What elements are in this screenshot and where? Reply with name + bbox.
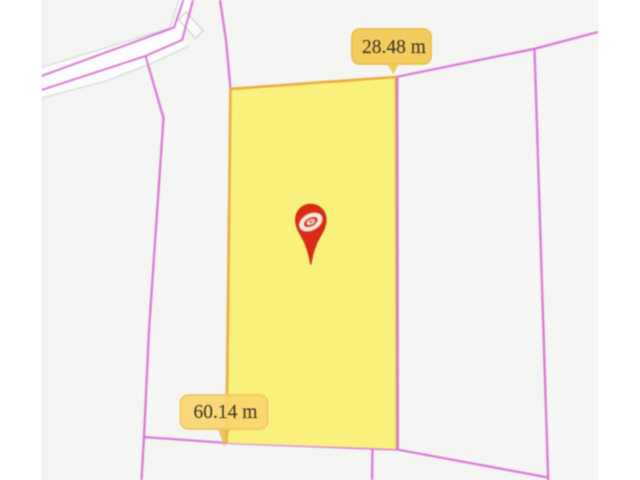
svg-text:60.14 m: 60.14 m bbox=[194, 402, 258, 423]
svg-text:28.48 m: 28.48 m bbox=[362, 37, 426, 58]
